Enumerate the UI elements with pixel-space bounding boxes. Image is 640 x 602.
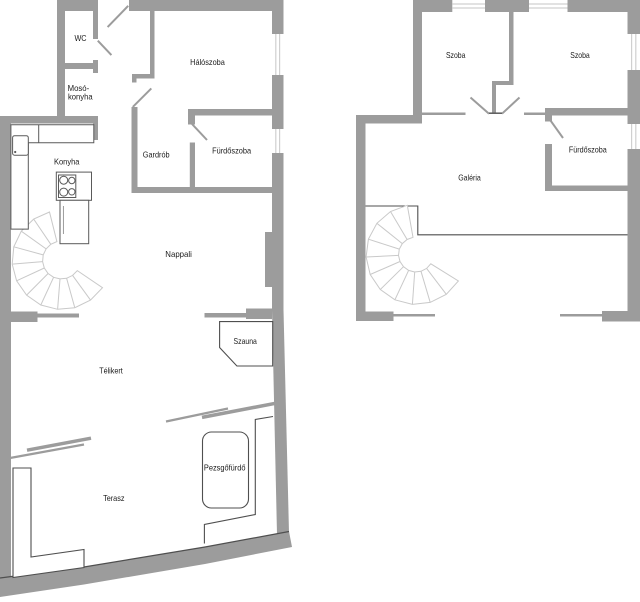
- svg-text:Szoba: Szoba: [570, 50, 590, 60]
- svg-text:konyha: konyha: [68, 91, 93, 101]
- svg-text:Galéria: Galéria: [458, 173, 481, 183]
- svg-text:WC: WC: [74, 33, 86, 43]
- svg-text:Szauna: Szauna: [234, 336, 258, 346]
- svg-text:Fürdőszoba: Fürdőszoba: [569, 145, 607, 155]
- svg-text:Nappali: Nappali: [165, 249, 192, 259]
- svg-text:Télikert: Télikert: [99, 365, 123, 375]
- svg-text:Gardrób: Gardrób: [143, 149, 170, 159]
- svg-text:Terasz: Terasz: [103, 493, 124, 503]
- svg-text:Pezsgőfürdő: Pezsgőfürdő: [204, 463, 246, 473]
- svg-text:Konyha: Konyha: [54, 156, 80, 166]
- svg-text:Szoba: Szoba: [446, 50, 466, 60]
- svg-text:Fürdőszoba: Fürdőszoba: [212, 146, 251, 156]
- svg-text:Hálószoba: Hálószoba: [190, 57, 225, 67]
